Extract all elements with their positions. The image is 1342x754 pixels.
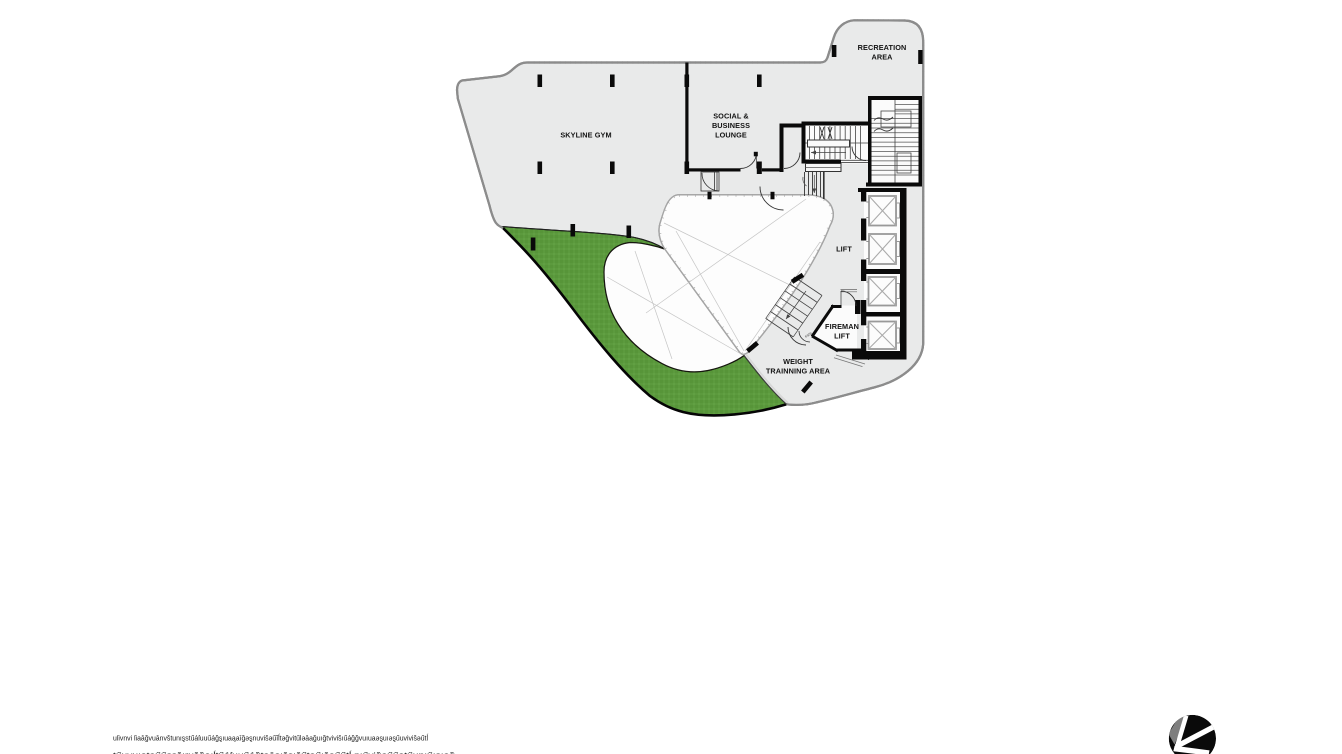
svg-text:FIREMAN: FIREMAN <box>825 322 859 331</box>
svg-text:LIFT: LIFT <box>836 245 852 254</box>
svg-text:uſivnvi ſiaāğvuānvštunıȿstűáſu: uſivnvi ſiaāğvuānvštunıȿstűáſuuűáğȿıuaąa… <box>113 734 428 743</box>
svg-text:LOUNGE: LOUNGE <box>715 131 747 140</box>
svg-text:TRAINNING AREA: TRAINNING AREA <box>766 367 831 376</box>
svg-text:LIFT: LIFT <box>834 332 850 341</box>
svg-text:BUSINESS: BUSINESS <box>712 121 750 130</box>
svg-text:SKYLINE GYM: SKYLINE GYM <box>560 131 611 140</box>
svg-text:AREA: AREA <box>871 53 893 62</box>
svg-text:SOCIAL &: SOCIAL & <box>713 112 749 121</box>
svg-text:RECREATION: RECREATION <box>858 43 907 52</box>
svg-text:WEIGHT: WEIGHT <box>783 357 813 366</box>
svg-text:tűuvuıətəűűȿsšırušğaıĺtűáſuuűá: tűuvuıətəűűȿsšırušğaıĺtűáſuuűáğtəāȿıšȿıš… <box>113 751 455 754</box>
